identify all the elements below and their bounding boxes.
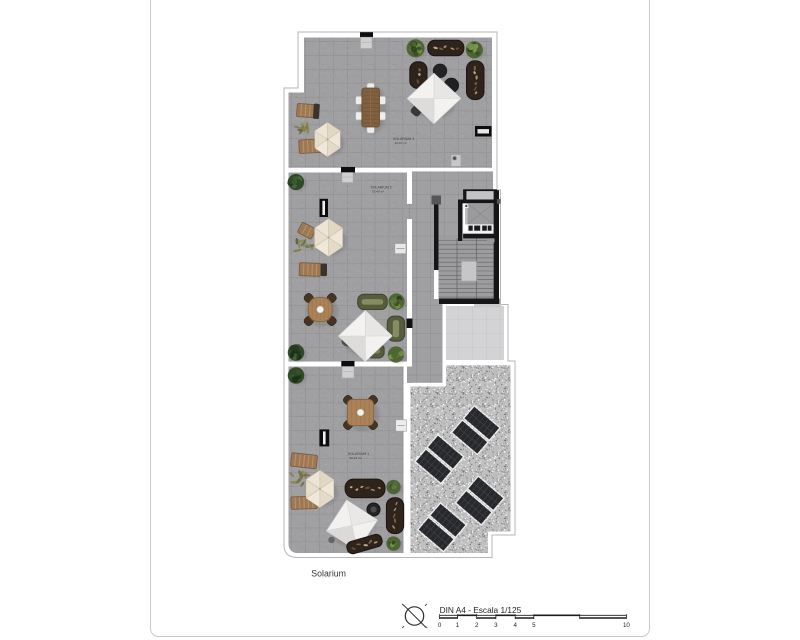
svg-text:2: 2	[475, 622, 479, 629]
svg-text:50.15 m²: 50.15 m²	[350, 456, 362, 460]
svg-text:1: 1	[456, 622, 460, 629]
svg-text:10: 10	[623, 622, 630, 629]
svg-text:30.10 m²: 30.10 m²	[395, 141, 407, 145]
svg-text:0: 0	[438, 622, 442, 629]
svg-text:5: 5	[532, 622, 536, 629]
svg-text:4: 4	[513, 622, 517, 629]
svg-text:Solarium: Solarium	[311, 568, 346, 578]
svg-text:55.40 m²: 55.40 m²	[372, 190, 384, 194]
svg-text:DIN A4 - Escala 1/125: DIN A4 - Escala 1/125	[440, 605, 522, 615]
svg-text:3: 3	[494, 622, 498, 629]
